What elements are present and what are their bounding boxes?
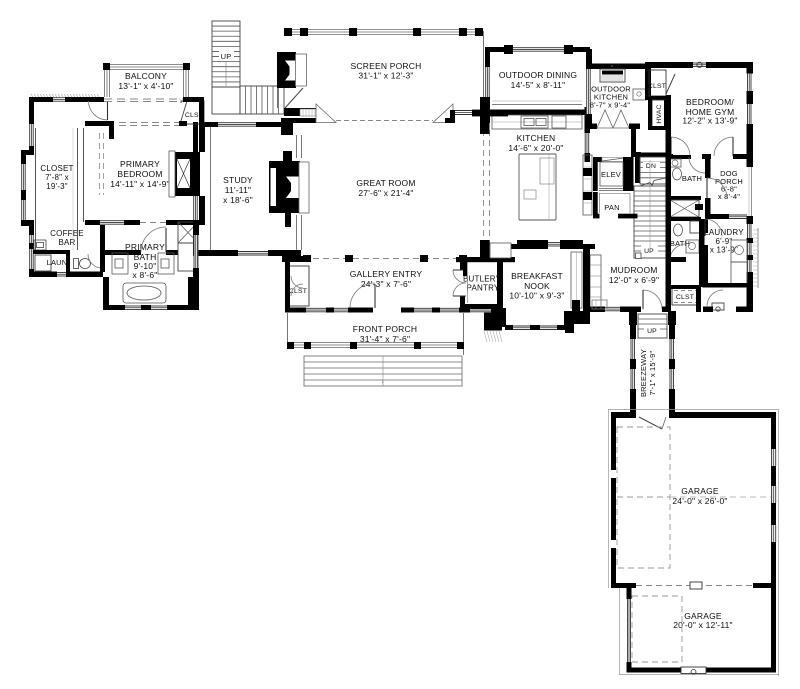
svg-text:CLST: CLST	[676, 294, 694, 301]
svg-text:BEDROOM/: BEDROOM/	[686, 97, 734, 107]
svg-text:27'-6" x 21'-4": 27'-6" x 21'-4"	[358, 188, 413, 198]
svg-text:7'-8" x: 7'-8" x	[45, 173, 69, 182]
svg-text:PANTRY: PANTRY	[467, 284, 500, 293]
svg-text:BEDROOM: BEDROOM	[117, 169, 162, 179]
svg-text:7'-1" x 15'-9": 7'-1" x 15'-9"	[648, 350, 657, 395]
svg-text:KITCHEN: KITCHEN	[517, 133, 556, 143]
svg-text:MUDROOM: MUDROOM	[610, 265, 657, 275]
svg-text:↓: ↓	[382, 379, 385, 385]
svg-text:12'-2" x 13'-9": 12'-2" x 13'-9"	[682, 116, 737, 126]
svg-text:PAN: PAN	[604, 203, 619, 212]
svg-text:x 8'-6": x 8'-6"	[133, 270, 158, 280]
svg-text:CLOSET: CLOSET	[40, 164, 73, 173]
svg-text:COFFEE: COFFEE	[50, 229, 84, 238]
svg-text:GALLERY ENTRY: GALLERY ENTRY	[350, 269, 423, 279]
svg-text:GARAGE: GARAGE	[681, 486, 719, 496]
svg-text:14'-6" x 20'-0": 14'-6" x 20'-0"	[508, 143, 563, 153]
svg-text:13'-1" x 4'-10": 13'-1" x 4'-10"	[118, 81, 173, 91]
svg-text:19'-3": 19'-3"	[46, 182, 68, 191]
svg-text:FRONT PORCH: FRONT PORCH	[353, 324, 417, 334]
svg-text:PRIMARY: PRIMARY	[120, 159, 160, 169]
svg-text:x 8'-4": x 8'-4"	[718, 192, 740, 201]
svg-text:24'-0" x 26'-0": 24'-0" x 26'-0"	[672, 496, 727, 506]
svg-text:10'-10" x 9'-3": 10'-10" x 9'-3"	[509, 291, 564, 301]
svg-text:BREAKFAST: BREAKFAST	[511, 271, 563, 281]
svg-text:BREEZEWAY: BREEZEWAY	[639, 349, 648, 397]
svg-text:OUTDOOR DINING: OUTDOOR DINING	[499, 70, 577, 80]
svg-text:31'-1" x 12'-3": 31'-1" x 12'-3"	[358, 71, 413, 81]
svg-text:LAUNDRY: LAUNDRY	[704, 228, 744, 237]
svg-text:GREAT ROOM: GREAT ROOM	[356, 178, 415, 188]
svg-text:HVAC: HVAC	[656, 104, 663, 123]
svg-text:BATH: BATH	[682, 174, 702, 183]
svg-text:8'-7" x 9'-4": 8'-7" x 9'-4"	[590, 101, 631, 110]
svg-text:ELEV: ELEV	[601, 170, 621, 179]
svg-text:12'-0" x 6'-9": 12'-0" x 6'-9"	[609, 275, 659, 285]
svg-text:UP: UP	[221, 52, 232, 61]
svg-text:x 13'-9": x 13'-9"	[710, 246, 738, 255]
svg-text:BALCONY: BALCONY	[125, 71, 167, 81]
svg-text:STUDY: STUDY	[223, 175, 253, 185]
svg-text:UP: UP	[644, 248, 654, 255]
svg-text:UP: UP	[647, 328, 657, 335]
svg-text:11'-11": 11'-11"	[225, 185, 252, 195]
svg-text:CLST: CLST	[648, 83, 666, 90]
svg-text:SCREEN PORCH: SCREEN PORCH	[351, 61, 422, 71]
svg-text:14'-11" x 14'-9": 14'-11" x 14'-9"	[110, 179, 170, 189]
svg-text:DN: DN	[646, 163, 656, 170]
svg-text:LAUN: LAUN	[47, 258, 68, 267]
svg-text:NOOK: NOOK	[524, 281, 550, 291]
svg-text:x 18'-6": x 18'-6"	[223, 195, 253, 205]
svg-text:14'-5" x 8'-11": 14'-5" x 8'-11"	[511, 80, 566, 90]
